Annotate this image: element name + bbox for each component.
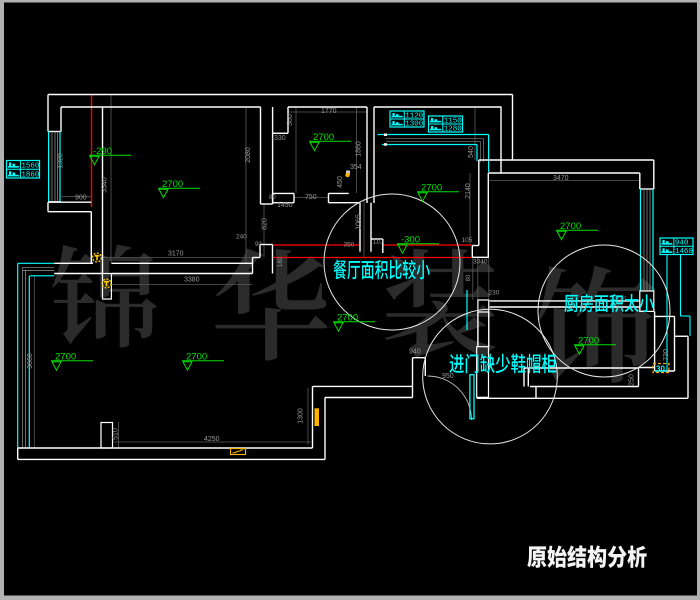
- svg-text:230: 230: [489, 290, 500, 297]
- svg-text:4250: 4250: [204, 436, 220, 443]
- svg-text:3660: 3660: [27, 353, 34, 369]
- svg-text:90: 90: [255, 242, 262, 248]
- svg-text:1460: 1460: [675, 248, 694, 256]
- svg-text:560: 560: [287, 114, 294, 126]
- svg-text:820: 820: [262, 218, 269, 230]
- svg-text:1770: 1770: [321, 108, 337, 115]
- svg-text:950: 950: [442, 373, 454, 380]
- svg-text:180: 180: [278, 256, 284, 267]
- svg-text:940: 940: [409, 349, 421, 356]
- svg-text:110: 110: [373, 239, 384, 246]
- svg-text:750: 750: [305, 194, 317, 201]
- svg-text:3380: 3380: [184, 277, 200, 284]
- svg-text:3170: 3170: [168, 251, 184, 258]
- svg-text:354: 354: [350, 164, 362, 171]
- svg-text:1300: 1300: [405, 120, 424, 128]
- svg-text:2140: 2140: [465, 183, 472, 199]
- svg-text:80: 80: [269, 195, 276, 201]
- svg-text:30: 30: [656, 365, 665, 374]
- svg-text:80: 80: [466, 274, 472, 281]
- svg-text:330: 330: [274, 135, 286, 142]
- svg-text:240: 240: [236, 233, 247, 240]
- svg-text:1860: 1860: [356, 141, 363, 157]
- svg-text:900: 900: [75, 195, 87, 202]
- svg-text:1450: 1450: [277, 202, 293, 209]
- svg-text:540: 540: [468, 146, 475, 158]
- svg-text:3340: 3340: [473, 259, 488, 266]
- svg-text:730: 730: [663, 349, 670, 361]
- svg-text:1280: 1280: [444, 125, 463, 133]
- svg-text:1065: 1065: [356, 214, 363, 230]
- svg-text:105: 105: [462, 237, 473, 244]
- svg-text:3470: 3470: [553, 175, 569, 182]
- svg-text:350: 350: [344, 242, 355, 249]
- svg-text:1300: 1300: [298, 408, 305, 424]
- svg-text:2080: 2080: [245, 147, 252, 163]
- svg-text:3340: 3340: [102, 177, 109, 193]
- svg-text:510: 510: [113, 428, 120, 440]
- svg-text:1860: 1860: [21, 171, 40, 179]
- svg-text:450: 450: [337, 176, 344, 188]
- svg-text:250: 250: [629, 374, 636, 386]
- svg-text:1320: 1320: [58, 153, 65, 169]
